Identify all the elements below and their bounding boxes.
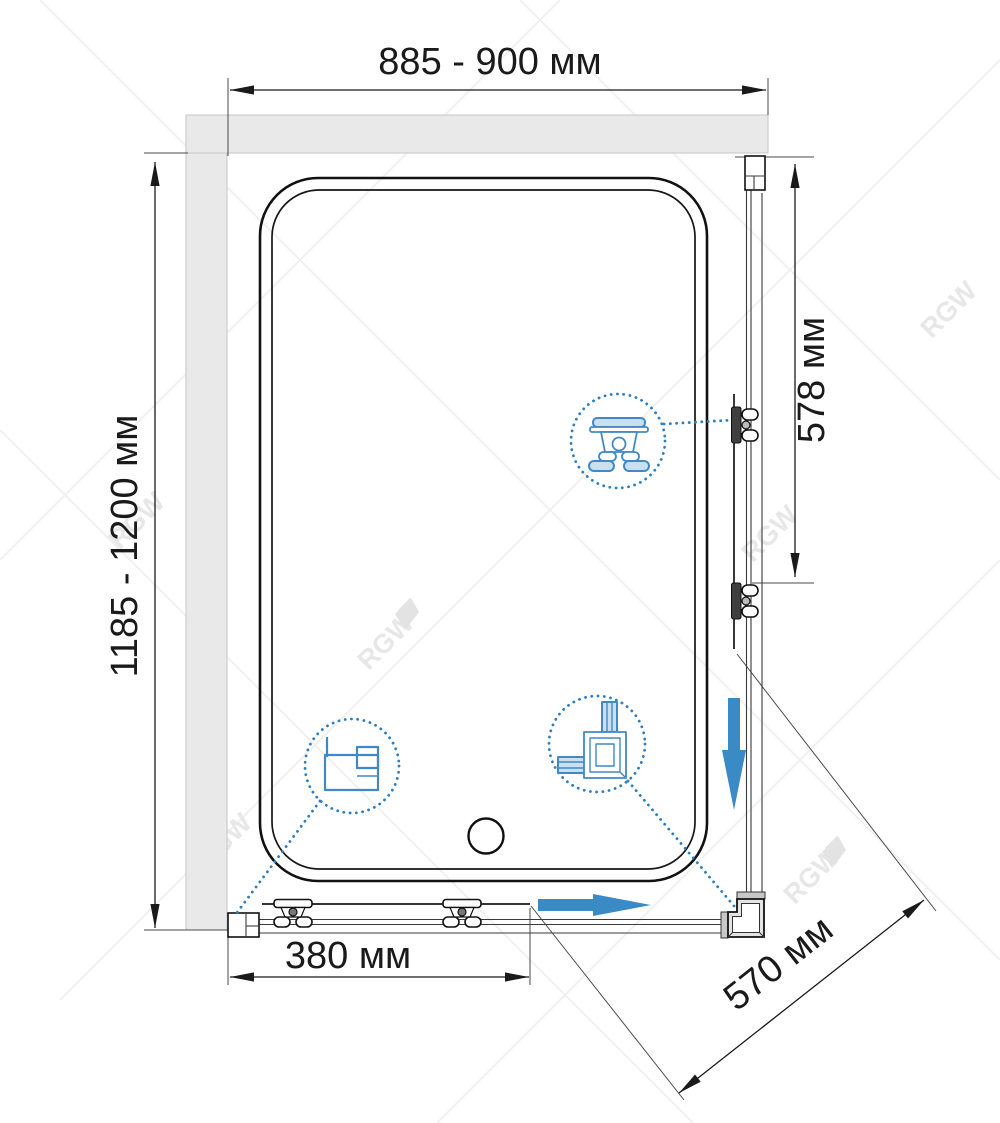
wall-top: [186, 115, 768, 153]
wall-left: [186, 153, 227, 930]
wall-profile-top-right: [745, 156, 765, 190]
dimension-bottom-label: 380 мм: [285, 935, 411, 977]
wall-profile-bottom-left: [228, 913, 259, 937]
technical-drawing-page: RGW RGW RGW RGW RGW RGW: [0, 0, 1000, 1123]
technical-drawing: RGW RGW RGW RGW RGW RGW: [0, 0, 1000, 1123]
dimension-left-label: 1185 - 1200 мм: [104, 415, 146, 678]
dimension-right-label: 578 мм: [791, 317, 833, 443]
background: [0, 0, 1000, 1123]
dimension-top-label: 885 - 900 мм: [378, 41, 601, 83]
drain-icon: [469, 819, 504, 854]
